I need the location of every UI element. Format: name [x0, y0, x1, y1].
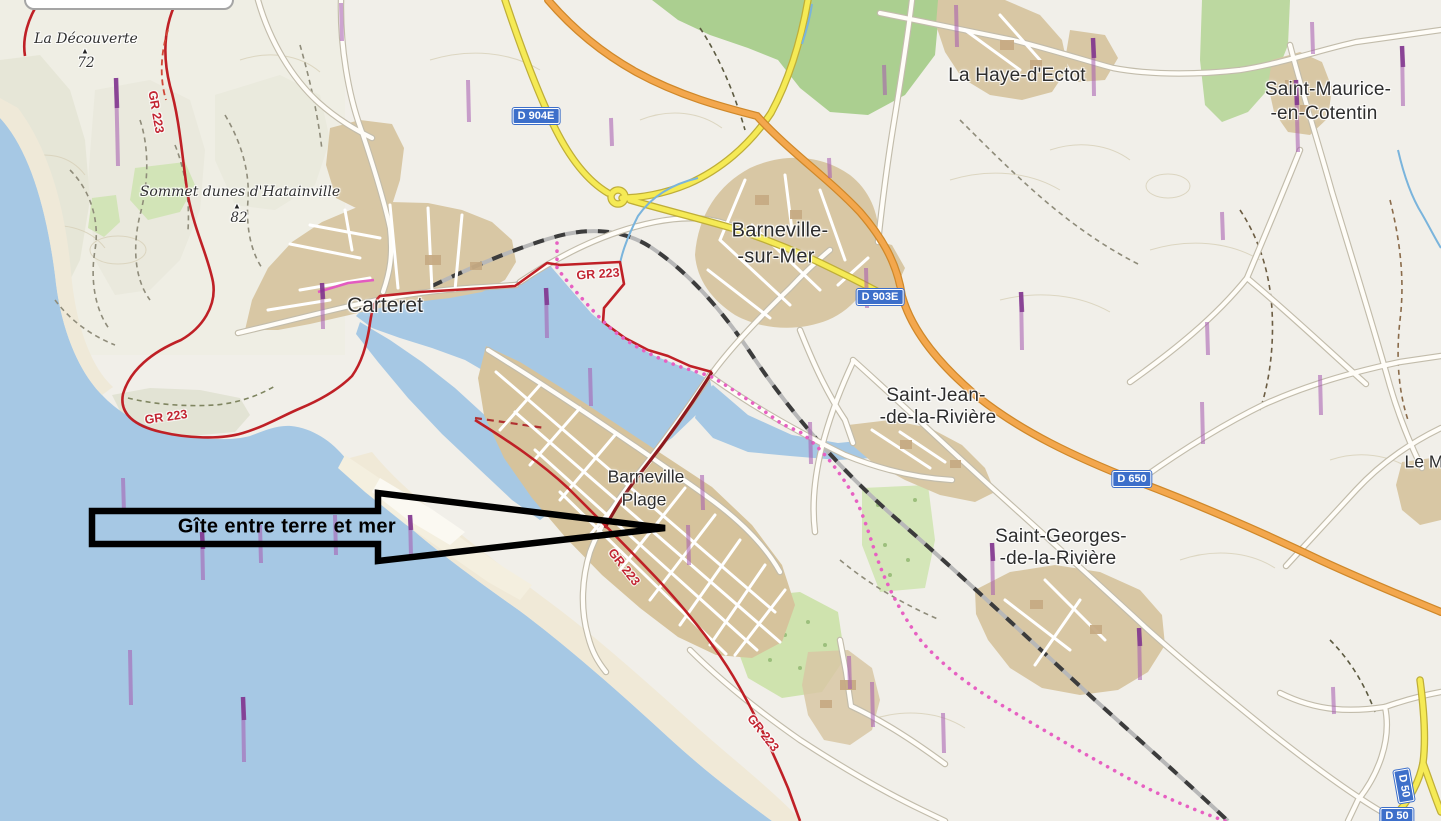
cutoff-popup [24, 0, 234, 10]
map-canvas[interactable] [0, 0, 1441, 821]
map-viewport[interactable]: Carteret Barneville- -sur-Mer La Haye-d'… [0, 0, 1441, 821]
